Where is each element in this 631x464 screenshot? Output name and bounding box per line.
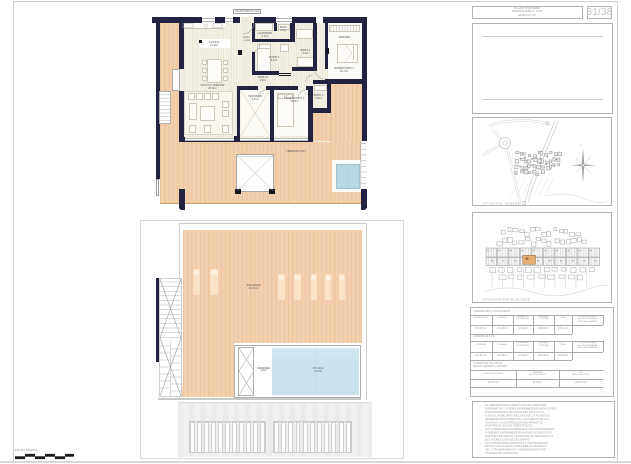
svg-text:EL PRESENTE DOCUMENTO ES DE CA: EL PRESENTE DOCUMENTO ES DE CARACTER (485, 403, 546, 407)
svg-text:POR EXIGENCIAS TECNICAS DEL PR: POR EXIGENCIAS TECNICAS DEL PROYECTO, (485, 410, 545, 414)
svg-text:—: — (479, 404, 482, 407)
svg-text:PUDIENDO EXPERIMENTAR MODIFICA: PUDIENDO EXPERIMENTAR MODIFICACIONES POR (485, 430, 552, 434)
svg-text:DE LA EJECUCION DE LAS OBRAS: DE LA EJECUCION DE LAS OBRAS. (485, 437, 530, 441)
svg-text:LAS SUPERFICIES INDICADAS A CO: LAS SUPERFICIES INDICADAS A CONTINUACION (485, 440, 548, 444)
svg-text:SANITARIOS SE SON ORIENTATIVOS: SANITARIOS SE SON ORIENTATIVOS. (485, 423, 533, 427)
svg-text:SITUACION GENERAL: SITUACION GENERAL (483, 202, 522, 206)
svg-text:SITUACION POR EL BLOQUE: SITUACION POR EL BLOQUE (483, 298, 531, 302)
svg-text:—: — (479, 441, 482, 444)
svg-text:ESTAN CALCULADAS CONFORME AL D: ESTAN CALCULADAS CONFORME AL DECRETO (485, 444, 546, 448)
svg-text:TODO EL MOBILIARIO INCLUIDO DE: TODO EL MOBILIARIO INCLUIDO DE LA PLANTA… (485, 413, 550, 417)
svg-text:—: — (479, 428, 482, 431)
svg-text:PLANTAS Y LA DISTRIBUCION DE A: PLANTAS Y LA DISTRIBUCION DE APARATOS (485, 420, 543, 424)
svg-text:RAZONES DE INDOLE TECNICA EN E: RAZONES DE INDOLE TECNICA EN EL DESARROL… (485, 433, 553, 437)
svg-text:REFERENCIA INFORMATIVA, LOS GR: REFERENCIA INFORMATIVA, LOS GRIFOS DE LA… (485, 416, 549, 420)
svg-text:N: N (580, 143, 582, 147)
svg-text:DE LA TRANSPARENCIA Y ABARATAM: DE LA TRANSPARENCIA Y ABARATAMIENTO DE (485, 447, 546, 451)
svg-text:LAS SUPERFICIES EXPRESADAS SON: LAS SUPERFICIES EXPRESADAS SON APROXIMAD… (485, 427, 555, 431)
svg-text:INFORMATIVO Y PODRA EXPERIMENT: INFORMATIVO Y PODRA EXPERIMENTAR VARIACI… (485, 406, 557, 410)
svg-text:VIVIENDA DE ANDALUCIA.: VIVIENDA DE ANDALUCIA. (485, 451, 519, 455)
